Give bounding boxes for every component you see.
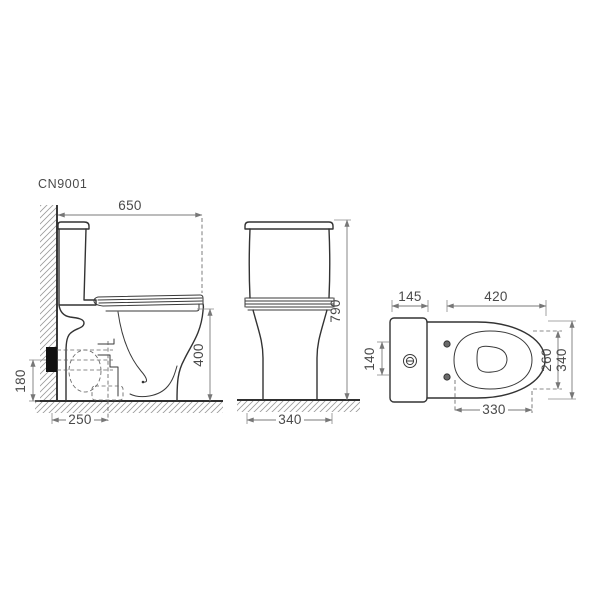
seat-hinge-top [444,341,450,347]
front-width-label: 340 [278,412,301,427]
technical-drawing-page: CN9001 [0,0,600,600]
floor-hatch-front [237,400,360,412]
model-code: CN9001 [38,177,87,191]
top-seat-outline [427,322,545,398]
side-hidden-lines [44,218,202,421]
side-tank-lid [58,222,89,229]
top-seat-length-label: 420 [484,289,507,304]
side-bowl-profile [59,304,203,401]
front-seat-band [245,298,334,310]
dim-top-flush-span: 140 [362,342,389,375]
front-tank [245,222,333,298]
front-tank-lid [245,222,333,229]
seat-hinge-bottom [444,374,450,380]
top-tank [390,318,427,402]
side-bowl-low-point [142,381,145,384]
side-width-label: 650 [118,198,141,213]
top-view: 145 420 140 260 340 [362,289,576,417]
top-bowl-opening [477,346,507,372]
side-view: 650 400 180 250 [13,198,223,427]
top-flush-span-label: 140 [362,347,377,370]
dim-side-width: 650 [58,198,202,215]
floor-hatch-side [35,401,223,413]
dim-top-tank-depth: 145 [392,289,428,312]
side-trap-bottom [130,366,177,397]
side-tank [58,222,96,305]
dim-side-bowl-height: 400 [191,309,214,401]
dim-front-height: 790 [328,220,351,400]
side-bowl-outer-left [59,305,84,401]
side-outlet-height-label: 180 [13,369,28,392]
dim-front-width: 340 [247,412,332,427]
side-seat-cover [94,295,203,311]
side-tank-body [59,229,96,305]
front-tank-body [249,229,330,298]
front-view: 790 340 [237,220,360,427]
top-bowl-length-label: 330 [482,402,505,417]
top-bowl-inner-rim [454,331,532,389]
top-tank-depth-label: 145 [398,289,421,304]
dim-top-seat-length: 420 [447,289,546,316]
wall-outlet-marker [46,347,57,372]
side-bowl-inner [118,312,147,382]
flush-button [404,355,417,368]
side-bowl-height-label: 400 [191,343,206,366]
dim-side-outlet-offset: 250 [52,412,108,427]
front-height-label: 790 [328,299,343,322]
front-pedestal [253,310,327,400]
side-outlet-offset-label: 250 [68,412,91,427]
toilet-technical-drawing: CN9001 [0,0,600,600]
top-inner-width-label: 260 [539,348,554,371]
top-overall-width-label: 340 [554,348,569,371]
